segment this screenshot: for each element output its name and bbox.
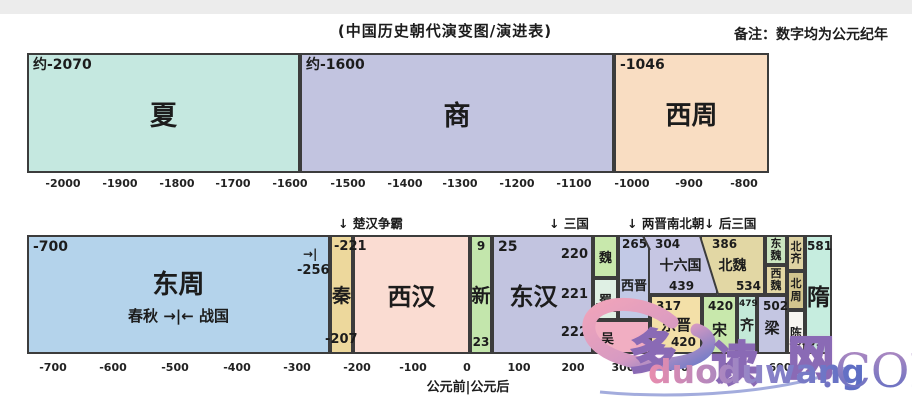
annotation-sanguo: ↓ 三国 bbox=[549, 213, 589, 232]
block-wei: 魏 bbox=[593, 235, 618, 278]
year-label: 265 bbox=[622, 238, 647, 250]
axis-tick-label: -300 bbox=[283, 361, 311, 374]
block-wu: 吴 bbox=[593, 320, 650, 354]
block-qi: 479 齐 bbox=[737, 295, 757, 354]
block-liang: 502 梁 bbox=[757, 295, 787, 354]
sub-periods-label: 春秋 →|← 战国 bbox=[128, 305, 229, 326]
year-label: 约-1600 bbox=[306, 58, 365, 72]
dynasty-label: 商 bbox=[444, 94, 471, 133]
dynasty-label: 新 bbox=[472, 281, 491, 308]
axis-tick-label: -400 bbox=[223, 361, 251, 374]
dynasty-label: 西周 bbox=[665, 95, 717, 132]
block-shu: 蜀 263 bbox=[593, 278, 618, 320]
year-label: 9 bbox=[472, 240, 490, 252]
year-label: 618 bbox=[807, 336, 830, 348]
axis-tick-label: 300 bbox=[612, 361, 635, 374]
axis-tick-label: -1800 bbox=[159, 177, 194, 190]
dynasty-label: 北周 bbox=[790, 278, 802, 302]
dynasty-label: 东周 bbox=[152, 264, 204, 301]
axis-tick-label: -1100 bbox=[556, 177, 591, 190]
year-221: 221 bbox=[561, 288, 588, 301]
era-divider-label: 公元前|公元后 bbox=[408, 376, 528, 395]
year-label: 263 bbox=[595, 302, 616, 314]
axis-tick-label: -1000 bbox=[614, 177, 649, 190]
axis-tick-label: -200 bbox=[343, 361, 371, 374]
dynasty-label: 西魏 bbox=[770, 268, 782, 292]
dynasty-label: 秦 bbox=[332, 281, 351, 308]
axis-tick-label: -100 bbox=[399, 361, 427, 374]
axis-tick-label: -2000 bbox=[45, 177, 80, 190]
axis-tick-label: -800 bbox=[730, 177, 758, 190]
block-chen: 陈 589 bbox=[787, 310, 805, 354]
year-label: -700 bbox=[33, 240, 68, 254]
dynasty-label: 十六国 bbox=[660, 255, 702, 275]
block-dongzhou: -700 东周 春秋 →|← 战国 bbox=[27, 235, 330, 354]
axis-tick-label: -1700 bbox=[215, 177, 250, 190]
axis-tick-label: 100 bbox=[508, 361, 531, 374]
axis-tick-label: -900 bbox=[675, 177, 703, 190]
year-label: 304 bbox=[655, 238, 680, 250]
axis-tick-label: 200 bbox=[562, 361, 585, 374]
year-label: 420 bbox=[671, 336, 696, 348]
axis-bce: -2000-1900-1800-1700-1600-1500-1400-1300… bbox=[0, 177, 912, 193]
dynasty-label: 齐 bbox=[740, 315, 754, 335]
block-xin: 9 新 23 bbox=[470, 235, 492, 354]
dynasty-label: 宋 bbox=[712, 319, 727, 340]
year-256: -256 bbox=[297, 264, 330, 277]
year-label: 502 bbox=[763, 300, 788, 312]
year-207: -207 bbox=[325, 333, 358, 346]
year-label: 581 bbox=[807, 240, 830, 252]
axis-tick-label: -1300 bbox=[442, 177, 477, 190]
annotation-chuhan: ↓ 楚汉争霸 bbox=[338, 213, 403, 232]
axis-tick-label: 500 bbox=[722, 361, 745, 374]
block-xijin: 265 西晋 bbox=[618, 235, 650, 320]
block-sui: 581 隋 618 bbox=[805, 235, 832, 354]
year-label: 23 bbox=[472, 336, 490, 348]
year-label: 479 bbox=[739, 300, 755, 309]
block-dongwei: 东魏 bbox=[765, 235, 787, 265]
dynasty-label: 东汉 bbox=[510, 277, 558, 312]
block-xiwei: 西魏 bbox=[765, 265, 787, 295]
year-220: 220 bbox=[561, 248, 588, 261]
end-marker-arrow: →| bbox=[303, 248, 317, 260]
block-beizhou: 北周 bbox=[787, 271, 805, 310]
year-label: 534 bbox=[736, 280, 761, 292]
year-label: 439 bbox=[669, 280, 694, 292]
dynasty-label: 东魏 bbox=[770, 238, 782, 262]
year-221: -221 bbox=[334, 240, 367, 253]
axis-tick-label: -1200 bbox=[499, 177, 534, 190]
axis-tick-label: -1900 bbox=[102, 177, 137, 190]
axis-tick-label: -600 bbox=[99, 361, 127, 374]
block-song: 420 宋 bbox=[702, 295, 737, 354]
year-label: -1046 bbox=[620, 58, 665, 72]
annotation-housanguo: ↓ 后三国 bbox=[704, 213, 756, 232]
axis-tick-label: -1600 bbox=[272, 177, 307, 190]
year-label: 25 bbox=[498, 240, 517, 254]
dynasty-label: 北魏 bbox=[719, 255, 747, 275]
year-label: 317 bbox=[656, 300, 681, 312]
axis-tick-label: -500 bbox=[161, 361, 189, 374]
dynasty-label: 魏 bbox=[599, 247, 612, 266]
year-label: 386 bbox=[712, 238, 737, 250]
block-donghan: 25 东汉 220 221 222 bbox=[492, 235, 593, 354]
dynasty-label: 夏 bbox=[150, 94, 177, 133]
annotation-liangjin: ↓ 两晋南北朝 bbox=[627, 213, 704, 232]
dynasty-label: 西晋 bbox=[621, 275, 647, 294]
axis-tick-label: -1500 bbox=[330, 177, 365, 190]
block-xizhou: -1046 西周 bbox=[614, 53, 769, 173]
block-xia: 约-2070 夏 bbox=[27, 53, 300, 173]
page-title: (中国历史朝代演变图/演进表) bbox=[290, 20, 600, 41]
axis-tick-label: 400 bbox=[666, 361, 689, 374]
dynasty-label: 隋 bbox=[807, 278, 830, 312]
year-label: 约-2070 bbox=[33, 58, 92, 72]
axis-tick-label: -1400 bbox=[387, 177, 422, 190]
dynasty-label: 北齐 bbox=[790, 241, 802, 265]
block-shang: 约-1600 商 bbox=[300, 53, 614, 173]
top-strip bbox=[0, 0, 912, 14]
dynasty-label: 东晋 bbox=[661, 314, 691, 335]
block-xihan: 西汉 bbox=[353, 235, 470, 354]
year-label: 420 bbox=[708, 300, 733, 312]
axis-main: -700-600-500-400-300-200-100010020030040… bbox=[0, 361, 912, 377]
dynasty-label: 梁 bbox=[764, 317, 779, 338]
block-dongjin: 317 东晋 420 bbox=[650, 295, 702, 354]
axis-tick-label: -700 bbox=[39, 361, 67, 374]
dynasty-label: 西汉 bbox=[388, 277, 436, 312]
axis-tick-label: 600 bbox=[769, 361, 792, 374]
axis-tick-label: 0 bbox=[463, 361, 471, 374]
dynasty-label: 吴 bbox=[601, 328, 614, 347]
block-beiqi: 北齐 bbox=[787, 235, 805, 271]
year-222: 222 bbox=[561, 326, 588, 339]
dynasty-timeline-chart: (中国历史朝代演变图/演进表) 备注：数字均为公元纪年 约-2070 夏 约-1… bbox=[0, 0, 912, 402]
note-text: 备注：数字均为公元纪年 bbox=[734, 24, 888, 44]
year-label: 589 bbox=[789, 339, 803, 348]
